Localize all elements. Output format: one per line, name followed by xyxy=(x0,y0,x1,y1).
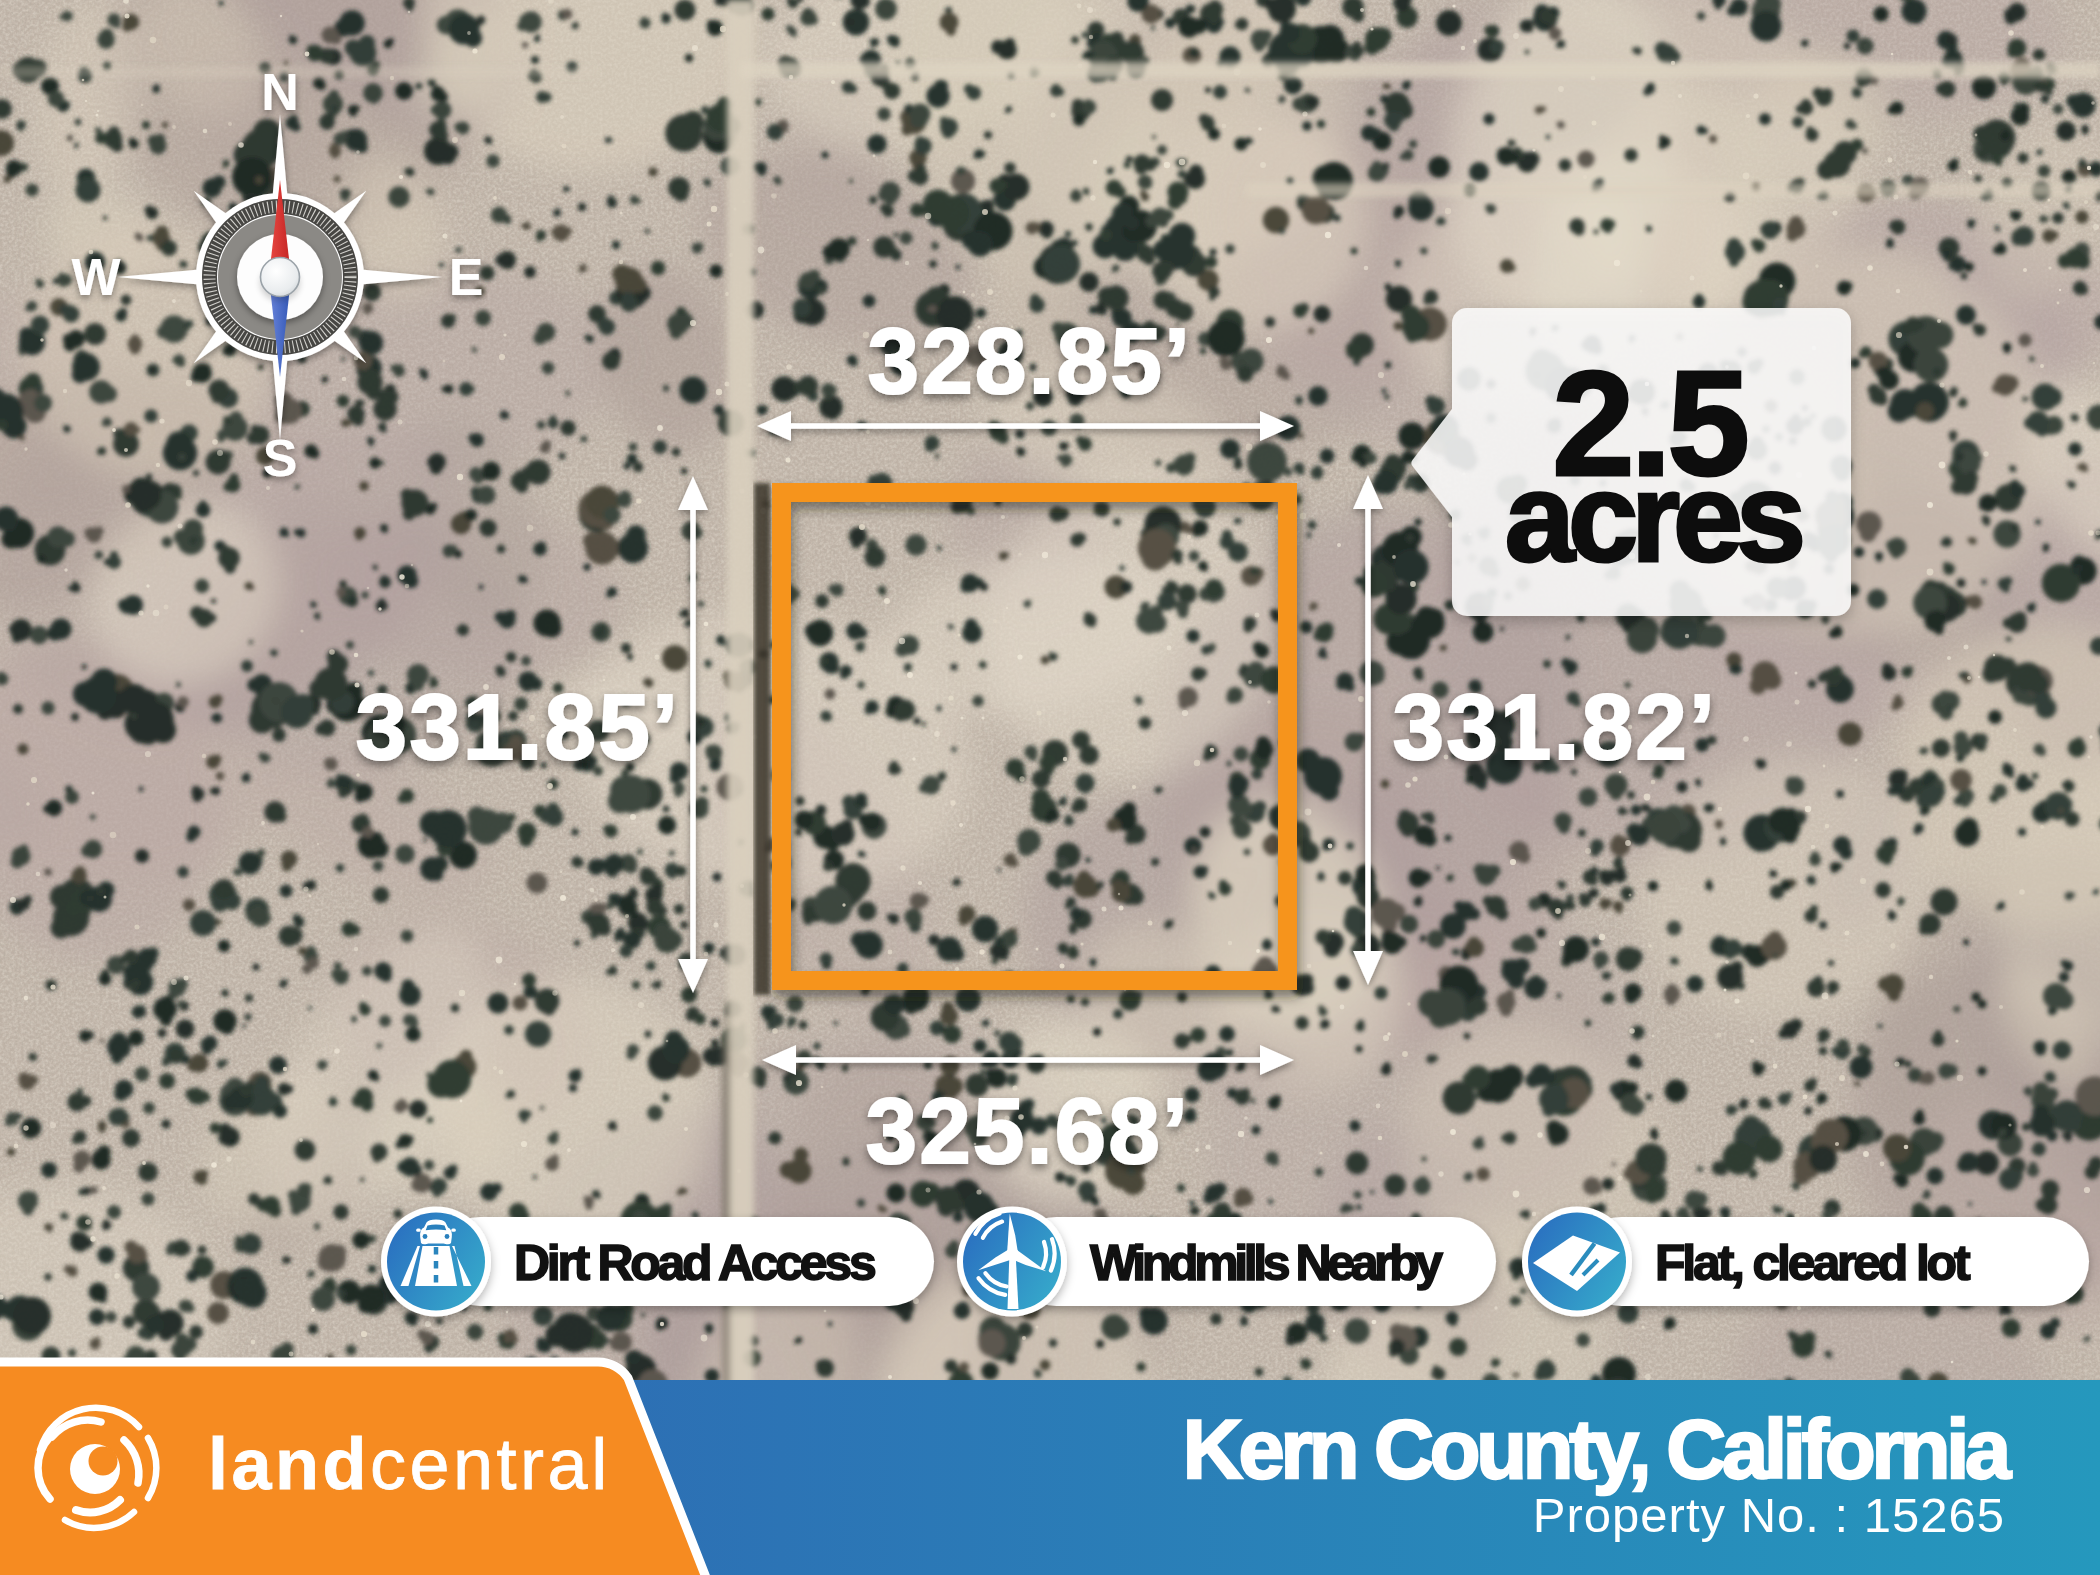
svg-text:acres: acres xyxy=(1505,447,1801,588)
svg-text:331.85’: 331.85’ xyxy=(356,676,680,778)
svg-text:W: W xyxy=(71,248,121,306)
svg-text:Windmills Nearby: Windmills Nearby xyxy=(1090,1235,1443,1291)
svg-text:Dirt Road Access: Dirt Road Access xyxy=(514,1235,875,1291)
svg-text:N: N xyxy=(261,63,299,121)
svg-text:Flat, cleared lot: Flat, cleared lot xyxy=(1655,1235,1971,1291)
svg-text:landcentral: landcentral xyxy=(208,1424,611,1504)
svg-text:331.82’: 331.82’ xyxy=(1393,676,1717,778)
svg-text:Kern County, California: Kern County, California xyxy=(1183,1403,2012,1496)
svg-text:325.68’: 325.68’ xyxy=(866,1080,1190,1182)
svg-text:328.85’: 328.85’ xyxy=(868,310,1192,412)
svg-text:S: S xyxy=(263,429,298,487)
svg-text:Property No. : 15265: Property No. : 15265 xyxy=(1533,1488,2005,1542)
svg-text:E: E xyxy=(449,248,484,306)
